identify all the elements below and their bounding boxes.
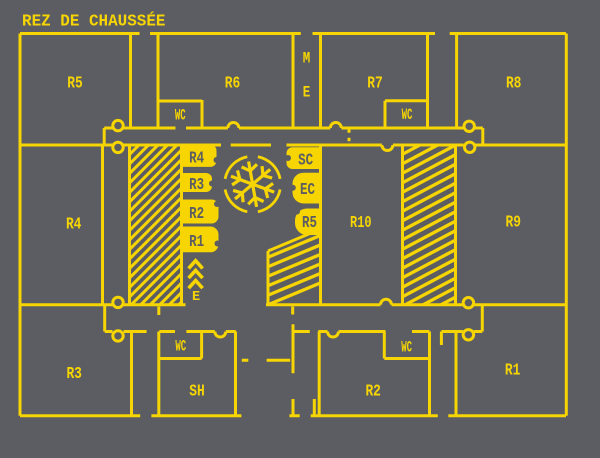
svg-text:WC: WC [402,106,413,124]
svg-text:WC: WC [175,107,186,125]
svg-text:EC: EC [300,180,315,199]
svg-text:R3: R3 [66,364,82,383]
svg-text:E: E [303,83,311,101]
svg-text:R4: R4 [189,148,204,167]
svg-text:SH: SH [189,381,205,400]
svg-text:R2: R2 [365,382,381,401]
svg-text:SC: SC [298,150,313,169]
svg-text:R5: R5 [302,213,317,232]
svg-text:WC: WC [401,338,412,356]
svg-text:R7: R7 [367,73,383,92]
svg-text:R2: R2 [189,204,204,223]
svg-text:R9: R9 [506,213,522,232]
svg-text:R6: R6 [225,74,241,93]
svg-text:R3: R3 [189,175,204,194]
svg-text:R4: R4 [66,215,82,234]
svg-text:REZ DE CHAUSSÉE: REZ DE CHAUSSÉE [22,12,166,31]
svg-text:R1: R1 [189,232,204,251]
svg-text:M: M [303,50,311,68]
svg-text:E: E [192,289,200,305]
svg-text:R8: R8 [506,74,522,93]
svg-text:R1: R1 [505,361,521,380]
svg-text:R5: R5 [67,74,83,93]
svg-text:R10: R10 [350,213,372,232]
svg-text:WC: WC [175,338,186,356]
